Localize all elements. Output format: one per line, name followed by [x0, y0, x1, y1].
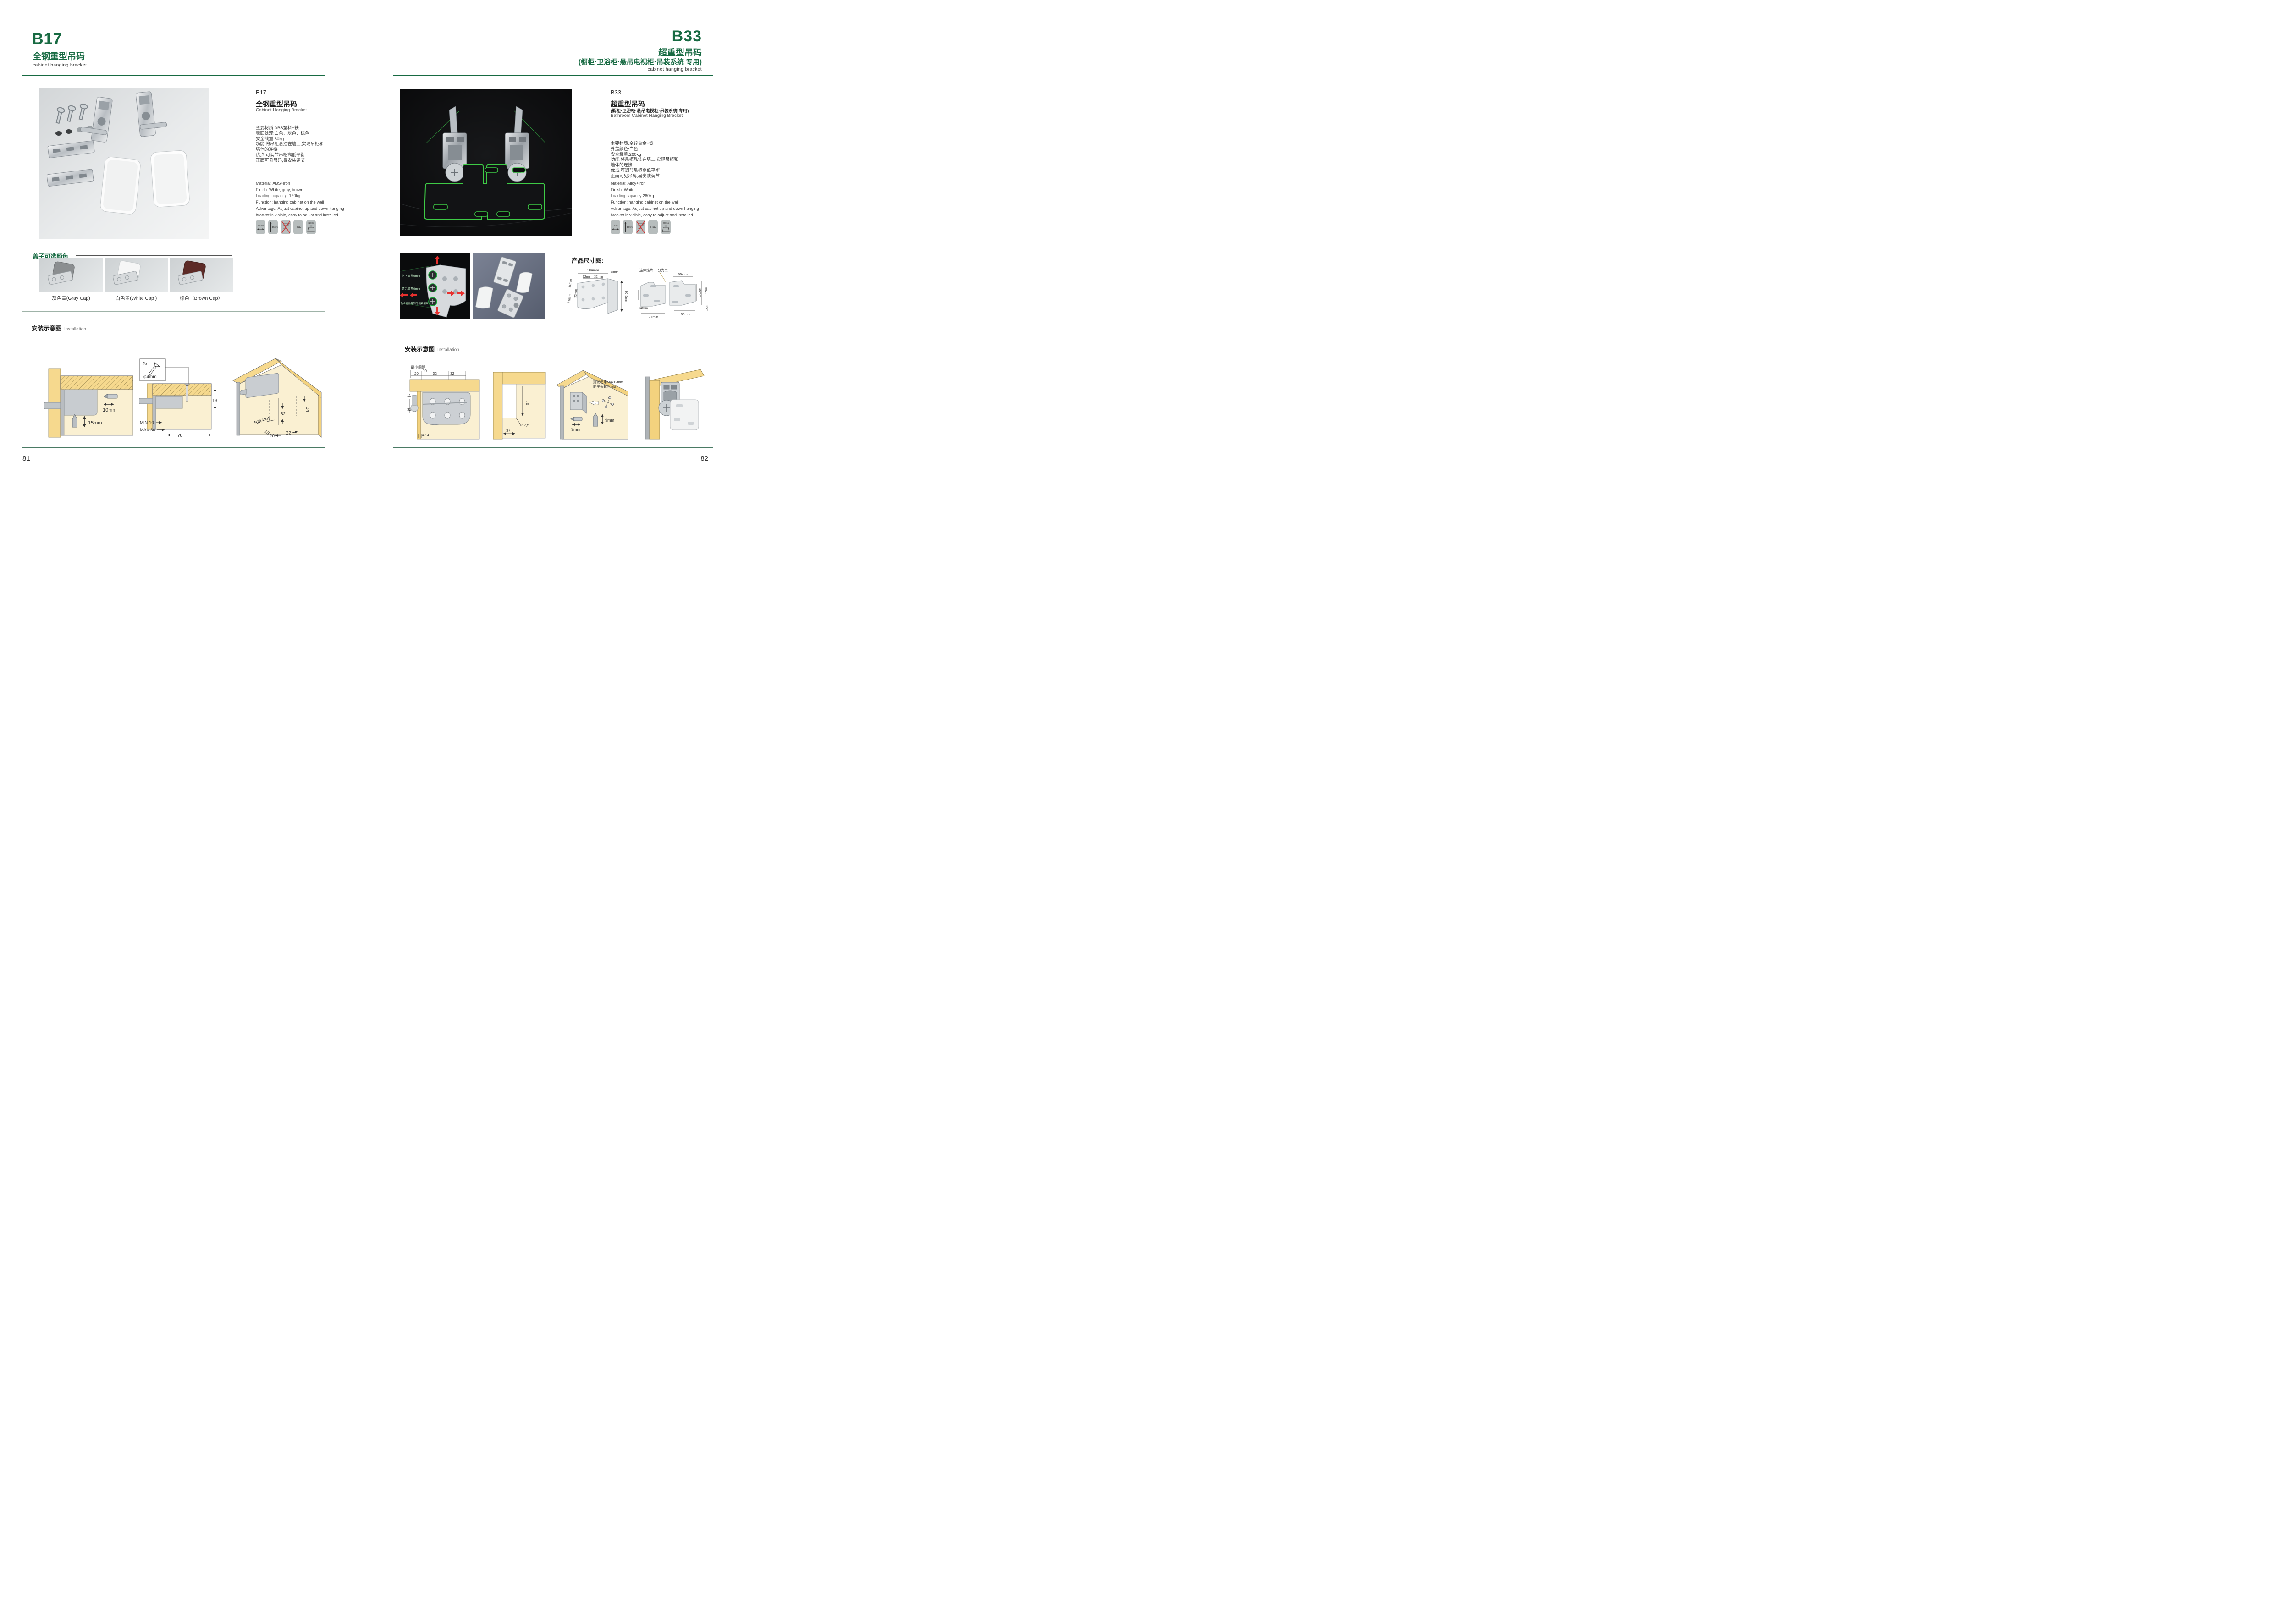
svg-text:34: 34: [305, 407, 310, 413]
svg-text:32: 32: [281, 412, 286, 417]
no-drill-icon: [281, 220, 291, 234]
dimension-drawing-plates: 连体挂片 一分为二 55mm 39mm 55mm 8mm 63mm 77mm 1…: [638, 266, 712, 320]
lga-icon: LGA: [648, 220, 658, 234]
spec-line: 功能:将吊柜悬挂在墙上,实现吊柜和: [256, 142, 324, 147]
height-15mm-icon: 15mm: [268, 220, 278, 234]
spec-line: Material: ABS+iron: [256, 181, 344, 187]
svg-text:32: 32: [407, 407, 411, 412]
svg-text:10mm: 10mm: [103, 407, 117, 413]
svg-text:9mm: 9mm: [571, 427, 580, 432]
header-divider: [393, 75, 713, 76]
spec-line: 主要材质:ABS塑料+铁: [256, 126, 324, 131]
cap-photo-white: [105, 258, 168, 292]
spec-line: bracket is visible, easy to adjust and i…: [611, 212, 699, 219]
product-title-cn: 全钢重型吊码: [33, 50, 85, 62]
spec-line: Loading capacity:260kg: [611, 193, 699, 199]
svg-text:63mm: 63mm: [681, 312, 690, 316]
install-diagram-isometric: 34 32 RMAX4 18 20 32: [227, 352, 326, 441]
col-title-en: Cabinet Hanging Bracket: [256, 108, 307, 113]
specs-en-block: Material: Alloy+iron Finish: White Loadi…: [611, 181, 699, 218]
svg-text:φ4mm: φ4mm: [143, 374, 157, 380]
svg-text:39mm: 39mm: [698, 288, 701, 297]
spec-line: 墙体的连接: [611, 163, 678, 168]
install-section-divider: [22, 311, 325, 312]
svg-text:连体挂片 一分为二: 连体挂片 一分为二: [639, 268, 668, 272]
product-card-b33: B33 超重型吊码 (橱柜·卫浴柜·悬吊电视柜·吊装系统 专用) cabinet…: [393, 21, 713, 448]
svg-text:LGA: LGA: [650, 226, 656, 229]
svg-text:13mm: 13mm: [627, 226, 633, 228]
svg-text:LGA: LGA: [296, 226, 301, 229]
install-diagram-mounted: [636, 364, 705, 443]
svg-text:MIN.10: MIN.10: [140, 420, 154, 425]
col-title-cn: 全钢重型吊码: [256, 99, 297, 109]
svg-text:51mm: 51mm: [567, 294, 572, 303]
svg-text:55mm: 55mm: [678, 272, 688, 276]
width-12mm-icon: 12mm: [611, 220, 620, 234]
svg-text:104mm: 104mm: [587, 268, 599, 272]
spec-line: Finish: White: [611, 187, 699, 193]
product-code-b33: B33: [672, 28, 702, 45]
svg-text:10mm: 10mm: [258, 224, 264, 226]
spec-line: Advantage: Adjust cabinet up and down ha…: [256, 206, 344, 212]
svg-text:78: 78: [177, 433, 183, 438]
svg-text:55mm: 55mm: [704, 287, 707, 297]
svg-text:8mm: 8mm: [705, 305, 708, 311]
install-title: 安装示意图Installation: [32, 324, 86, 332]
install-diagram-front: 最小间距 20 10 32 32 11 32 4-14: [406, 364, 483, 443]
install-title-en: Installation: [437, 347, 459, 352]
svg-text:R 2,5: R 2,5: [520, 423, 529, 427]
product-subtitle-en: cabinet hanging bracket: [33, 62, 87, 68]
svg-text:4-14: 4-14: [422, 433, 430, 437]
svg-text:120Kg: 120Kg: [308, 222, 314, 224]
install-title-en: Installation: [64, 327, 86, 332]
spec-line: 墙体的连接: [256, 147, 324, 153]
col-code: B17: [256, 89, 266, 96]
svg-text:32mm: 32mm: [583, 275, 592, 279]
svg-text:15mm: 15mm: [88, 420, 102, 426]
spec-line: 安全载重:80kg: [256, 137, 324, 142]
specs-cn-block: 主要材质:ABS塑料+铁 表面处理:白色、灰色、棕色 安全载重:80kg 功能:…: [256, 126, 324, 164]
svg-text:12mm: 12mm: [639, 307, 648, 310]
install-diagram-side-section: 78 R 2,5 37: [490, 364, 549, 443]
spec-line: 安全载重:260kg: [611, 152, 678, 158]
specs-cn-block: 主要材质:全锌合金+铁 外盖颜色:白色 安全载重:260kg 功能:将吊柜悬挂在…: [611, 141, 678, 179]
svg-text:的平头螺丝固定: 的平头螺丝固定: [593, 384, 617, 389]
spec-line: Loading capacity: 120kg: [256, 193, 344, 199]
spec-line: 正面可见吊码,易安装调节: [611, 174, 678, 179]
svg-text:78: 78: [525, 401, 530, 405]
spec-line: Advantage: Adjust cabinet up and down ha…: [611, 206, 699, 212]
install-title-cn: 安装示意图: [405, 346, 435, 352]
product-code-b17: B17: [32, 30, 62, 48]
page-number-right: 82: [690, 455, 708, 462]
spec-line: 优点:可调节吊柜高低平衡: [611, 168, 678, 174]
catalog-spread: B17 全钢重型吊码 cabinet hanging bracket: [0, 0, 733, 479]
cap-caption-gray: 灰色盖(Gray Cap): [39, 295, 103, 302]
spec-line: 正面可见吊码,易安装调节: [256, 158, 324, 164]
product-photo-b17-graphic: [39, 88, 209, 239]
no-drill-icon: [636, 220, 645, 234]
install-diagram-wall-section: 10mm 15mm: [44, 360, 136, 440]
product-subtitle-en: cabinet hanging bracket: [648, 66, 702, 72]
svg-text:前后调节9mm: 前后调节9mm: [402, 286, 420, 291]
svg-text:37: 37: [506, 428, 511, 433]
svg-text:260Kg: 260Kg: [663, 222, 669, 224]
svg-text:11mm: 11mm: [568, 279, 573, 288]
svg-text:10: 10: [423, 369, 427, 373]
col-title-en: Bathroom Cabinet Hanging Bracket: [611, 113, 683, 118]
svg-text:32mm: 32mm: [594, 275, 603, 279]
width-10mm-icon: 10mm: [256, 220, 265, 234]
cap-photo-gray: [39, 258, 103, 292]
install-diagram-screw-note: 建议使用M4x12mm 的平头螺丝固定 9mm 9mm: [555, 362, 630, 443]
product-card-b17: B17 全钢重型吊码 cabinet hanging bracket: [22, 21, 325, 448]
svg-text:77mm: 77mm: [649, 315, 658, 319]
dimensions-title: 产品尺寸图:: [572, 256, 603, 264]
lga-icon: LGA: [293, 220, 303, 234]
svg-text:15mm: 15mm: [272, 226, 278, 228]
spec-line: 外盖颜色:白色: [611, 147, 678, 152]
product-title-cn: 超重型吊码: [658, 46, 702, 58]
specs-en-block: Material: ABS+iron Finish: White, gray, …: [256, 181, 344, 218]
install-title: 安装示意图Installation: [405, 344, 459, 353]
load-120kg-icon: 120Kg: [306, 220, 316, 234]
svg-text:防止柜体翻转的锁紧螺丝: 防止柜体翻转的锁紧螺丝: [401, 302, 429, 305]
svg-text:建议使用M4x12mm: 建议使用M4x12mm: [593, 380, 623, 384]
feature-icons-row: 12mm 13mm LGA 260Kg: [611, 220, 672, 234]
spec-line: Material: Alloy+iron: [611, 181, 699, 187]
svg-text:32: 32: [450, 372, 454, 376]
dimension-drawing-bracket: 104mm 32mm 32mm 39mm 11mm 51mm 32mm 80.5…: [567, 266, 636, 320]
spec-line: 优点:可调节吊柜高低平衡: [256, 153, 324, 158]
col-title-paren: (橱柜·卫浴柜·悬吊电视柜·吊装系统 专用): [611, 107, 689, 114]
install-diagram-screw-section: 2x φ4mm 13 MIN.10 MAX.30 78: [139, 358, 224, 440]
svg-text:32: 32: [286, 431, 292, 436]
svg-text:20: 20: [414, 372, 419, 376]
cap-caption-white: 白色盖(White Cap ): [105, 295, 168, 302]
svg-text:13: 13: [212, 398, 218, 403]
adjustment-thumb-photo: 上下调节9mm 前后调节9mm 防止柜体翻转的锁紧螺丝: [400, 253, 470, 319]
col-code: B33: [611, 89, 621, 96]
height-13mm-icon: 13mm: [623, 220, 633, 234]
feature-icons-row: 10mm 15mm LGA 120Kg: [256, 220, 317, 234]
spec-line: Finish: White, gray, brown: [256, 187, 344, 193]
spec-line: bracket is visible, easy to adjust and i…: [256, 212, 344, 219]
product-photo-b33: [400, 89, 572, 236]
svg-text:80.5mm: 80.5mm: [624, 291, 628, 303]
spec-line: 功能:将吊柜悬挂在墙上,实现吊柜和: [611, 157, 678, 163]
svg-text:39mm: 39mm: [610, 271, 619, 274]
svg-text:12mm: 12mm: [612, 224, 618, 226]
svg-text:9mm: 9mm: [605, 418, 614, 423]
spec-line: Function: hanging cabinet on the wall: [611, 199, 699, 206]
page-number-left: 81: [22, 455, 30, 462]
cap-caption-brown: 棕色（Brown Cap）: [170, 295, 233, 302]
svg-text:32: 32: [433, 372, 437, 376]
caps-title-rule: [76, 255, 232, 256]
svg-text:上下调节9mm: 上下调节9mm: [402, 274, 420, 278]
header-divider: [22, 75, 325, 76]
product-photo-b17: [39, 88, 209, 239]
spec-line: 主要材质:全锌合金+铁: [611, 141, 678, 147]
parts-thumb-photo: [473, 253, 545, 319]
spec-line: Function: hanging cabinet on the wall: [256, 199, 344, 206]
install-title-cn: 安装示意图: [32, 325, 61, 332]
load-260kg-icon: 260Kg: [661, 220, 671, 234]
cap-photo-brown: [170, 258, 233, 292]
svg-text:2x: 2x: [143, 362, 148, 367]
spec-line: 表面处理:白色、灰色、棕色: [256, 131, 324, 137]
svg-text:20: 20: [270, 434, 275, 439]
product-photo-b33-graphic: [400, 89, 572, 236]
product-title-paren: (橱柜·卫浴柜·悬吊电视柜·吊装系统 专用): [579, 57, 702, 66]
svg-text:11: 11: [407, 394, 411, 398]
svg-text:MAX.30: MAX.30: [140, 428, 155, 433]
